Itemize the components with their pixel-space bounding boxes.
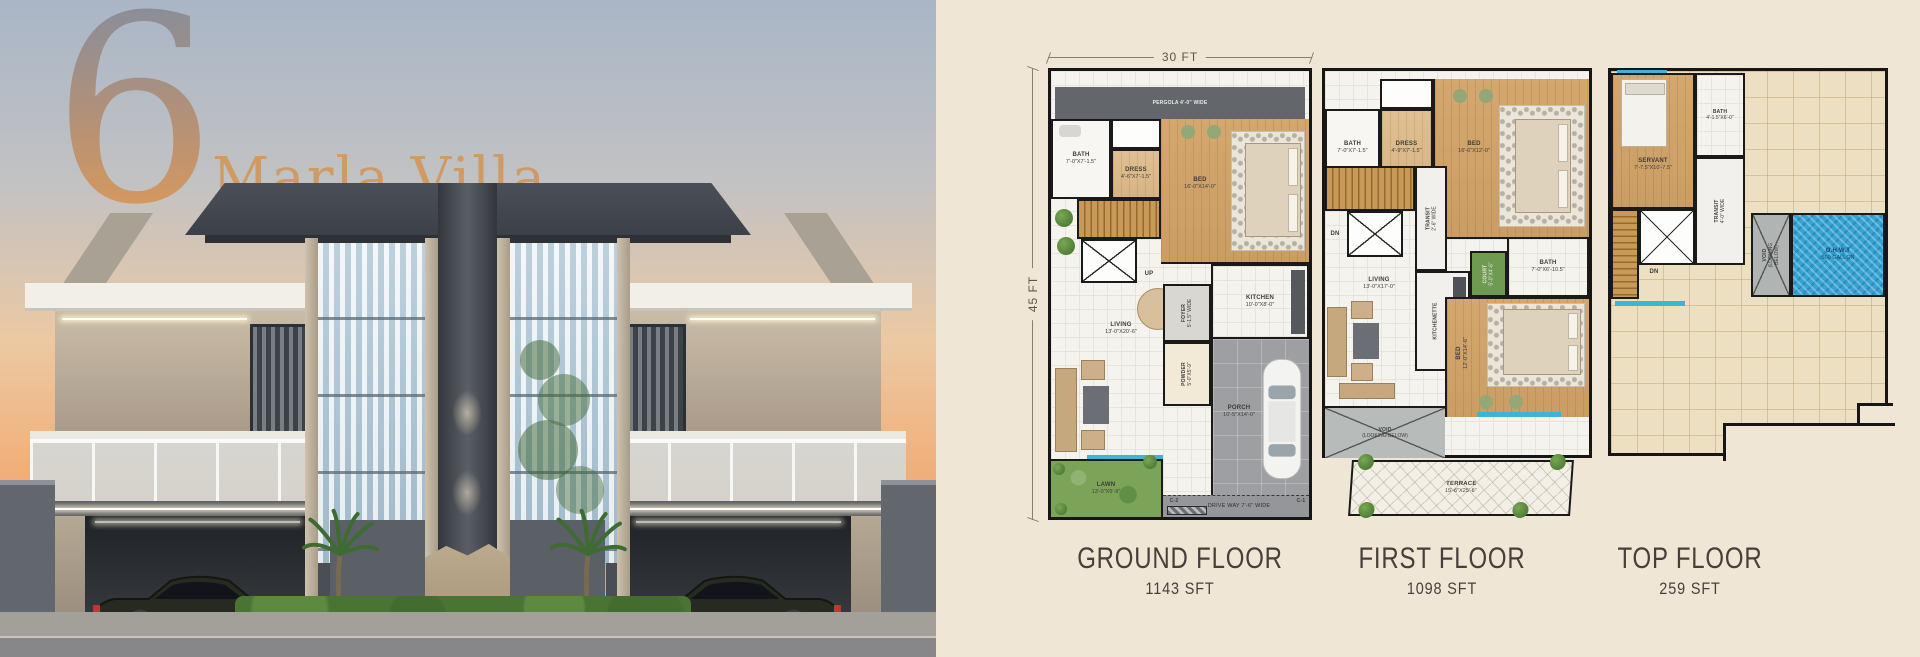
room-label: TRANSIT xyxy=(1714,199,1720,222)
stairs-up-label: UP xyxy=(1145,271,1154,278)
villa-photo: 6 Marla Villa xyxy=(0,0,936,657)
void-area: VOID(LOOKING BELOW) xyxy=(1325,406,1445,458)
stairs-dn-label: DN xyxy=(1649,269,1658,276)
balcony-glass-right xyxy=(606,439,906,501)
room-transit: TRANSIT2'-6" WIDE xyxy=(1415,166,1447,271)
terrace-plant xyxy=(1512,502,1529,518)
kitchen-counter xyxy=(1291,270,1305,334)
led-strip-right xyxy=(690,318,875,320)
flyer-page: 6 Marla Villa xyxy=(0,0,1920,657)
sofa xyxy=(1055,368,1077,452)
room-dims: 10'-5"X14'-0" xyxy=(1223,412,1255,419)
pillar-lamp-lower xyxy=(452,470,482,516)
room-dims: 4'-6"X7'-1.5" xyxy=(1121,174,1151,181)
room-dims: 16'-0"X14'-0" xyxy=(1184,184,1216,191)
bed-furniture xyxy=(1621,79,1667,147)
column-label-c1: C-1 xyxy=(1297,498,1306,504)
armchair xyxy=(1081,430,1105,450)
room-bath: BATH4'-1.5"X6'-0" xyxy=(1695,73,1745,157)
chair xyxy=(1453,89,1467,103)
terrace-plant xyxy=(1357,454,1374,470)
armchair xyxy=(1351,301,1373,319)
room-dims: 4'-0" WIDE xyxy=(1720,199,1726,223)
room-bed: BED16'-0"X14'-0" xyxy=(1161,119,1309,264)
room-label: DRESS xyxy=(1396,141,1418,148)
shrub xyxy=(1053,463,1065,475)
chair xyxy=(1181,125,1195,139)
dimension-line-45ft: 45 FT xyxy=(1032,68,1033,520)
room-foyer: FOYER5'-1.5" WIDE xyxy=(1163,284,1211,342)
chair xyxy=(1509,395,1523,409)
plant xyxy=(1055,209,1073,227)
tower-pilaster-2 xyxy=(425,238,438,600)
floor-plan-top: SERVANT7'-7.5"X10'-7.5" BATH4'-1.5"X6'-0… xyxy=(1608,68,1888,456)
room-label: O.H.W.T xyxy=(1826,248,1850,255)
room-dims: 13'-0"X17'-0" xyxy=(1363,284,1395,291)
room-label: FOYER xyxy=(1181,304,1187,322)
balcony-led-left xyxy=(40,508,320,510)
closet xyxy=(1380,79,1433,109)
room-label: KITCHENETTE xyxy=(1433,302,1439,339)
balcony-led-right xyxy=(616,508,896,510)
armchair xyxy=(1351,363,1373,381)
room-label: BED xyxy=(1456,346,1463,359)
room-dims: 2'-6" WIDE xyxy=(1431,206,1437,230)
chair xyxy=(1207,125,1221,139)
pillow xyxy=(1558,170,1568,208)
led-strip-left xyxy=(62,318,247,320)
bed-furniture xyxy=(1515,119,1571,213)
room-label: TRANSIT xyxy=(1425,207,1431,230)
wing-roof-left xyxy=(25,283,345,311)
room-dims: 5'-1.5" WIDE xyxy=(1187,299,1193,328)
tower-pilaster-3 xyxy=(497,238,510,600)
room-dims: 13'-0"X5'-9" xyxy=(1092,489,1121,496)
room-label: SERVANT xyxy=(1638,158,1668,165)
car-top-view-icon xyxy=(1259,347,1305,491)
terrace-plant xyxy=(1549,454,1566,470)
room-label: BATH xyxy=(1713,109,1727,115)
room-porch: PORCH10'-5"X14'-0" xyxy=(1211,339,1309,499)
bed-furniture xyxy=(1503,309,1581,375)
room-dims: 4'-1.5"X6'-0" xyxy=(1706,115,1733,121)
room-label: COURT xyxy=(1483,265,1489,284)
pillow xyxy=(1568,345,1578,371)
caption-first-floor: FIRST FLOOR 1098 SFT xyxy=(1322,542,1562,599)
room-dims: (LOOKING BELOW) xyxy=(1768,237,1780,273)
room-bed2: BED12'-0"X14'-6" xyxy=(1445,297,1589,417)
sidewalk xyxy=(0,612,936,638)
staircase xyxy=(1077,199,1161,239)
floor-plan-first: BATH7'-0"X7'-1.5" DRESS4'-9"X7'-1.5" BED… xyxy=(1322,68,1592,520)
pillow xyxy=(1625,83,1665,95)
caption-top-floor: TOP FLOOR 259 SFT xyxy=(1570,542,1810,599)
room-bath2: BATH7'-0"X6'-10.5" xyxy=(1507,237,1589,297)
outline-notch xyxy=(1723,423,1895,461)
first-floor-body: BATH7'-0"X7'-1.5" DRESS4'-9"X7'-1.5" BED… xyxy=(1322,68,1592,458)
plant xyxy=(1057,237,1075,255)
pillow xyxy=(1558,124,1568,162)
column-label-c2: C-2 xyxy=(1170,498,1179,504)
room-dims: 5'-0"X5'-9" xyxy=(1187,362,1193,385)
room-dims: 7'-0"X7'-1.5" xyxy=(1066,159,1096,166)
stairs-dn-label: DN xyxy=(1330,231,1339,238)
coffee-table xyxy=(1083,386,1109,424)
caption-first-name: FIRST FLOOR xyxy=(1346,542,1538,576)
room-label: BATH xyxy=(1539,260,1556,267)
water-tank: O.H.W.T500 GALLON xyxy=(1791,213,1885,297)
room-dims: 4'-9"X7'-1.5" xyxy=(1391,148,1421,155)
caption-ground-name: GROUND FLOOR xyxy=(1074,542,1285,576)
balcony-glass-left xyxy=(30,439,330,501)
hero-number: 6 xyxy=(52,0,216,240)
room-label: KITCHEN xyxy=(1246,295,1274,302)
room-label: BATH xyxy=(1344,141,1361,148)
garage-led-right xyxy=(636,521,841,523)
room-label: BATH xyxy=(1072,152,1089,159)
dimension-line-30ft: 30 FT xyxy=(1048,57,1312,58)
shrub xyxy=(1143,455,1157,469)
closet xyxy=(1111,119,1161,149)
room-court: COURT5'-0"X4'-6" xyxy=(1470,251,1507,297)
floor-plan-ground: PERGOLA 4'-0" WIDE BATH7'-0"X7'-1.5" DRE… xyxy=(1048,68,1312,520)
room-label: VOID xyxy=(1762,248,1768,261)
terrace-plant xyxy=(1358,502,1375,518)
shrub xyxy=(1055,503,1067,515)
room-dims: (LOOKING BELOW) xyxy=(1362,433,1408,439)
room-dims: 5'-0"X4'-6" xyxy=(1489,262,1495,285)
room-label: LIVING xyxy=(1110,322,1131,329)
room-dress: DRESS4'-6"X7'-1.5" xyxy=(1111,149,1161,199)
room-transit: TRANSIT4'-0" WIDE xyxy=(1695,157,1745,265)
armchair xyxy=(1081,360,1105,380)
pillow xyxy=(1568,313,1578,339)
room-label: DRESS xyxy=(1125,167,1147,174)
balcony-slab-right xyxy=(606,431,906,439)
road xyxy=(0,636,936,657)
window-strip xyxy=(1477,412,1561,417)
caption-first-area: 1098 SFT xyxy=(1340,579,1544,599)
caption-ground-area: 1143 SFT xyxy=(1068,579,1292,599)
pillow xyxy=(1288,194,1298,232)
caption-top-name: TOP FLOOR xyxy=(1594,542,1786,576)
room-dims: 12'-0"X14'-6" xyxy=(1463,337,1470,369)
staircase xyxy=(1325,166,1415,211)
room-dims: 500 GALLON xyxy=(1821,255,1854,262)
room-label: POWDER xyxy=(1181,362,1187,386)
room-dims: 7'-0"X6'-10.5" xyxy=(1531,267,1564,274)
room-bed1: BED16'-6"X12'-0" xyxy=(1433,79,1589,239)
room-dims: 16'-6"X12'-0" xyxy=(1458,148,1490,155)
pillar-lamp-upper xyxy=(452,390,482,436)
room-dims: 10'-0"X8'-0" xyxy=(1246,302,1275,309)
room-bath: BATH7'-0"X7'-1.5" xyxy=(1051,119,1111,199)
pillow xyxy=(1288,148,1298,186)
room-kitchen: KITCHEN10'-0"X8'-0" xyxy=(1211,264,1309,339)
dimension-label-30ft: 30 FT xyxy=(1154,50,1206,64)
room-label: PORCH xyxy=(1228,405,1251,412)
room-powder: POWDER5'-0"X5'-9" xyxy=(1163,342,1211,406)
room-label: BED xyxy=(1193,177,1206,184)
gate xyxy=(1167,506,1207,515)
sofa xyxy=(1339,383,1395,399)
room-label: TERRACE xyxy=(1446,481,1477,488)
lift-shaft xyxy=(1081,239,1137,283)
dimension-label-45ft: 45 FT xyxy=(1026,268,1040,320)
sofa xyxy=(1327,307,1347,377)
bath-fixture xyxy=(1059,125,1081,137)
roof-fin-right xyxy=(784,213,879,291)
room-label: LIVING xyxy=(1368,277,1389,284)
room-label: VOID xyxy=(1378,427,1391,433)
room-lawn: LAWN13'-0"X5'-9" xyxy=(1051,459,1163,517)
void-area: VOID(LOOKING BELOW) xyxy=(1751,213,1791,297)
room-label: DRIVE WAY 7'-6" WIDE xyxy=(1208,503,1271,510)
window-strip xyxy=(1615,301,1685,306)
garage-led-left xyxy=(95,521,300,523)
room-dims: 7'-7.5"X10'-7.5" xyxy=(1634,165,1672,172)
coffee-table xyxy=(1353,323,1379,359)
chair xyxy=(1479,89,1493,103)
wing-roof-right xyxy=(592,283,912,311)
room-dims: 7'-0"X7'-1.5" xyxy=(1337,148,1367,155)
room-label: LAWN xyxy=(1097,482,1115,489)
driveway: DRIVE WAY 7'-6" WIDE C-2 C-1 xyxy=(1163,495,1309,517)
chair xyxy=(1479,395,1493,409)
lift-shaft xyxy=(1347,211,1403,257)
room-label: BED xyxy=(1467,141,1480,148)
room-dims: 15'-6"X25'-6" xyxy=(1445,488,1477,495)
caption-ground-floor: GROUND FLOOR 1143 SFT xyxy=(1048,542,1312,599)
bed-furniture xyxy=(1245,143,1301,237)
staircase xyxy=(1611,209,1639,299)
lift-shaft xyxy=(1639,209,1695,265)
glass-tree-silhouette xyxy=(520,340,560,380)
room-terrace: TERRACE15'-6"X25'-6" xyxy=(1348,460,1574,516)
balcony-slab-left xyxy=(30,431,330,439)
room-servant: SERVANT7'-7.5"X10'-7.5" xyxy=(1611,73,1695,209)
caption-top-area: 259 SFT xyxy=(1588,579,1792,599)
room-pergola: PERGOLA 4'-0" WIDE xyxy=(1055,87,1305,119)
room-dims: 13'-0"X20'-6" xyxy=(1105,329,1137,336)
room-label: PERGOLA 4'-0" WIDE xyxy=(1153,100,1208,106)
